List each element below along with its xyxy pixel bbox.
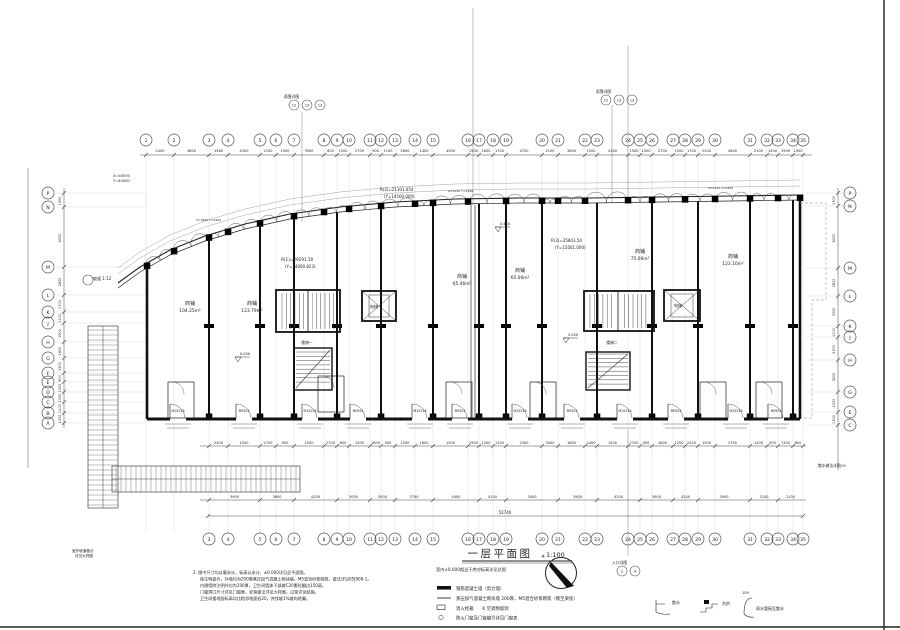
- grid-bubble-label: L: [849, 294, 852, 300]
- sketch-dim: 100: [742, 591, 750, 595]
- grid-bubble-label: 10: [346, 138, 352, 144]
- wc-door-swing: [760, 382, 772, 394]
- grid-bubble-label: 18: [490, 537, 496, 543]
- dim-value: 1500: [339, 149, 348, 153]
- legend-swatch-window: [439, 615, 443, 619]
- north-needle: [549, 562, 574, 588]
- dim-value: 2400: [587, 441, 596, 445]
- grid-bubble-label: B: [46, 411, 49, 417]
- grid-bubble-label: 13: [392, 138, 398, 144]
- column: [625, 197, 632, 204]
- grid-bubble-label: N: [46, 205, 49, 211]
- dim-value: 6200: [832, 234, 836, 243]
- elevation-mark: [235, 357, 241, 362]
- north-mark: ✳: [541, 554, 545, 560]
- notes: 2. 图中尺寸均以毫米计，标高以米计，±0.000详见总平面图。 除注明者外，外…: [193, 569, 371, 601]
- grid-bubble-label: 23: [594, 537, 600, 543]
- dim-value: 1800: [482, 149, 491, 153]
- note-line: 卫生间楼地面标高均比相邻地面低20，并找坡1%坡向地漏。: [200, 595, 310, 601]
- drawing-title: 一层平面图: [468, 548, 533, 560]
- dim-value: 900: [385, 441, 392, 445]
- grid-bubble-label: M: [46, 265, 50, 271]
- elevation-mark: [495, 227, 501, 232]
- grid-bubble-label: 20: [539, 537, 545, 543]
- dim-value: 2100: [760, 495, 769, 499]
- ramp-callout-bubble: [83, 275, 93, 285]
- dim-value: 1400: [420, 149, 429, 153]
- grid-bubble-label: H: [848, 358, 851, 364]
- dim-value: 2700: [728, 441, 737, 445]
- grid-bubble-label: 6: [275, 537, 278, 543]
- grid-bubble-label: 12: [378, 537, 384, 543]
- dim-total: 52740: [499, 510, 512, 515]
- grid-bubble-label: 22: [582, 138, 588, 144]
- dim-value: 1200: [355, 441, 364, 445]
- room-area: 65.46m²: [453, 281, 472, 287]
- dim-value: 3900: [305, 149, 314, 153]
- dim-value: 1300: [832, 415, 836, 424]
- wc-door-swing: [534, 382, 546, 394]
- dim-value: 3900: [652, 495, 661, 499]
- dim-value: 4100: [608, 149, 617, 153]
- dim-value: 2700: [630, 441, 639, 445]
- grid-bubble-label: K: [848, 324, 852, 330]
- grid-bubble-label: 29: [695, 537, 701, 543]
- callout-number: 2: [621, 570, 623, 574]
- dim-value: 3900: [573, 495, 582, 499]
- column: [346, 206, 353, 213]
- door-tag: M1023A: [171, 409, 185, 413]
- door-tag: M0924: [567, 409, 578, 413]
- grid-bubble-label: 4: [227, 138, 230, 144]
- annotation: X=4722 Y=1260: [708, 186, 733, 190]
- dim-value: 1100: [495, 441, 504, 445]
- dim-value: 2800: [832, 279, 836, 288]
- dim-value: 1400: [768, 149, 777, 153]
- annotation: 楼梯一: [301, 340, 313, 345]
- room-area: 123.79m²: [241, 308, 263, 314]
- column: [465, 198, 472, 205]
- dim-value: 3000: [378, 495, 387, 499]
- sketch-label: 雨水管接至散水: [756, 605, 784, 611]
- dim-value: 1700: [687, 149, 696, 153]
- grid-bubble-label: 35: [800, 537, 806, 543]
- annotation: (Y=14000.823): [285, 264, 316, 269]
- dim-value: 2700: [658, 149, 667, 153]
- grid-bubble-label: 8: [323, 138, 326, 144]
- door-tag: M0924: [353, 409, 364, 413]
- dim-value: 1200: [675, 441, 684, 445]
- room-area: 65.06m²: [511, 275, 530, 281]
- dim-value: 1500: [281, 149, 290, 153]
- dim-value: 1800: [658, 441, 667, 445]
- dim-value: 1500: [240, 441, 249, 445]
- dim-value: 1500: [305, 441, 314, 445]
- column: [412, 201, 419, 208]
- dim-value: 900: [58, 375, 62, 381]
- dim-value: 900: [643, 441, 650, 445]
- grid-bubble-label: 16: [465, 138, 471, 144]
- annotation: X=4150 Y=1298: [448, 189, 473, 193]
- annotation: R(3)=35843.54: [551, 238, 582, 243]
- dim-value: 2300: [520, 441, 529, 445]
- dim-value: 2100: [786, 495, 795, 499]
- dim-value: 1900: [58, 329, 62, 338]
- room-area: 123.10m²: [722, 261, 744, 267]
- grid-bubble-label: L: [47, 293, 50, 299]
- grid-bubble-label: 2: [173, 138, 176, 144]
- dim-value: 1300: [832, 196, 836, 205]
- grid-bubble-label: 12: [378, 138, 384, 144]
- grid-bubble-label: 10: [346, 537, 352, 543]
- grid-bubble-label: C: [46, 400, 49, 406]
- callout-label: 入口详图: [612, 560, 627, 565]
- grid-bubble-label: 30: [712, 138, 718, 144]
- callout-label: 雨篷详图: [596, 89, 611, 94]
- room-name: 商铺: [457, 273, 467, 280]
- dimensions: [62, 153, 840, 518]
- annotation: 坡道 1:12: [93, 275, 112, 281]
- floor-plan-sheet: M1023AM0924M1023AM0924M1023AM0924M1023AM…: [0, 0, 900, 630]
- dim-value: 900: [769, 441, 776, 445]
- grid-bubble-label: 20: [539, 138, 545, 144]
- dim-value: 2000: [832, 399, 836, 408]
- grid-bubble-label: 11: [367, 138, 373, 144]
- dim-value: 2100: [264, 149, 273, 153]
- dim-value: 1200: [754, 441, 763, 445]
- grid-bubble-label: 34: [790, 537, 796, 543]
- dim-value: 3200: [832, 373, 836, 382]
- annotation: (Y=14500.000): [384, 194, 415, 199]
- dim-value: 1000: [58, 384, 62, 393]
- dim-value: 2700: [264, 441, 273, 445]
- legend-label: 防火门窗及门窗编号详见门窗表: [456, 615, 518, 622]
- grid-bubble-label: E: [849, 410, 852, 416]
- grid-bubble-label: 19: [503, 537, 509, 543]
- door-tag: M0924: [771, 409, 782, 413]
- dim-value: 2400: [687, 441, 696, 445]
- sketch-label: 散水: [672, 599, 680, 605]
- grid-bubble-label: G: [848, 390, 852, 396]
- grid-bubble-label: J: [848, 335, 850, 341]
- dim-value: 2100: [546, 149, 555, 153]
- grid-bubble-label: 26: [649, 138, 655, 144]
- dim-value: 4500: [446, 149, 455, 153]
- grid-bubble-label: 17: [476, 138, 482, 144]
- columns: [144, 195, 804, 421]
- grid-bubble-label: 25: [637, 138, 643, 144]
- column: [775, 195, 782, 202]
- grid-bubble-label: 24: [625, 537, 631, 543]
- grid-bubble-label: E: [47, 380, 50, 386]
- grid-bubble-label: 7: [293, 138, 296, 144]
- grid-bubble-label: 35: [800, 138, 806, 144]
- room-name: 商铺: [185, 300, 195, 307]
- grid-bubble-label: P: [849, 191, 852, 197]
- dim-value: 3600: [273, 495, 282, 499]
- grid-bubble-label: 32: [764, 537, 770, 543]
- grid-bubble-label: 32: [764, 138, 770, 144]
- grid-bubble-label: 3: [208, 537, 211, 543]
- bottom-wall: [147, 404, 800, 428]
- dim-value: 3900: [720, 495, 729, 499]
- dim-value: 1700: [58, 300, 62, 309]
- dim-value: 2400: [156, 149, 165, 153]
- dim-value: 2700: [410, 495, 419, 499]
- annotation: 楼梯二: [606, 340, 618, 345]
- grid-bubble-label: 5: [259, 537, 262, 543]
- column: [682, 196, 689, 203]
- dim-value: 1200: [482, 441, 491, 445]
- column: [582, 198, 589, 205]
- dim-value: 1900: [781, 149, 790, 153]
- dim-value: 4800: [187, 149, 196, 153]
- dim-value: 1300: [794, 149, 803, 153]
- dim-value: 1100: [832, 328, 836, 337]
- grid-bubble-label: C: [848, 423, 851, 429]
- door-tag: M1023A: [513, 409, 527, 413]
- grid-bubble-label: 31: [747, 537, 753, 543]
- room-name: 商铺: [515, 267, 525, 274]
- callout-number: 13: [630, 99, 635, 103]
- dim-value: 3600: [567, 149, 576, 153]
- column: [225, 229, 232, 236]
- grid-bubble-label: N: [848, 204, 851, 210]
- dim-value: 3000: [349, 495, 358, 499]
- dim-value: 4300: [240, 149, 249, 153]
- grid-bubble-label: 34: [790, 138, 796, 144]
- callout-number: 13: [617, 99, 622, 103]
- grid-bubble-label: 5: [259, 138, 262, 144]
- sketch-label: 台阶: [722, 600, 730, 606]
- grid-bubble-label: 17: [476, 537, 482, 543]
- room-area: 75.06m²: [631, 256, 650, 262]
- grid-bubble-label: 33: [775, 138, 781, 144]
- annotation: X=3620 Y=1402: [196, 218, 221, 222]
- dim-value: 800: [795, 441, 802, 445]
- dim-value: 2800: [58, 278, 62, 287]
- annotation: 详见大样图: [75, 553, 93, 558]
- grid-bubble-label: 9: [336, 138, 339, 144]
- grid-bubble-label: 24: [625, 138, 631, 144]
- grid-bubble-label: A: [46, 421, 50, 427]
- dim-value: 2300: [832, 345, 836, 354]
- dim-value: 1500: [702, 441, 711, 445]
- callout-number: 13: [305, 104, 310, 108]
- grid-bubble-label: F: [47, 371, 50, 377]
- note-line: 2. 图中尺寸均以毫米计，标高以米计，±0.000详见总平面图。: [193, 569, 308, 575]
- elevation-mark: [563, 338, 569, 343]
- annotation: 电梯: [370, 303, 378, 309]
- grid-bubble-label: 22: [582, 537, 588, 543]
- dim-value: 4200: [681, 495, 690, 499]
- dim-value: 1500: [587, 149, 596, 153]
- grid-bubble-label: 7: [293, 537, 296, 543]
- dim-value: 1800: [567, 441, 576, 445]
- legend-label: 蒸压加气混凝土砌块墙 200厚，M5混合砂浆砌筑（砌至梁底）: [456, 595, 578, 602]
- grid-bubble-label: 9: [336, 537, 339, 543]
- dim-value: 1800: [371, 441, 380, 445]
- elevation-value: 0.000: [240, 352, 251, 356]
- dim-value: 1000: [58, 394, 62, 403]
- dim-value: 2100: [754, 149, 763, 153]
- annotation: R(2)=21101.054: [380, 187, 414, 192]
- grid-bubble-label: M: [848, 266, 852, 272]
- dim-value: 600: [340, 441, 347, 445]
- grid-bubble-label: G: [46, 356, 50, 362]
- dim-value: 4700: [520, 149, 529, 153]
- dim-value: 2200: [702, 149, 711, 153]
- dim-value: 1000: [58, 415, 62, 424]
- terrace-outline: [800, 203, 826, 418]
- grid-bubble-label: 31: [747, 138, 753, 144]
- sketch-taijie-block: [704, 600, 709, 604]
- dim-value: 900: [282, 441, 289, 445]
- room-name: 商铺: [728, 253, 738, 260]
- dim-value: 2900: [469, 441, 478, 445]
- dim-value: 1200: [401, 441, 410, 445]
- grid-bubble-label: 4: [227, 537, 230, 543]
- grid-bubble-label: 28: [682, 138, 688, 144]
- dim-value: 2400: [214, 441, 223, 445]
- grid-bubble-label: 13: [392, 537, 398, 543]
- detail-sketches: 散水 台阶 100 雨水管接至散水: [656, 591, 784, 617]
- grid-bubble-label: 19: [503, 138, 509, 144]
- dim-value: 2700: [326, 441, 335, 445]
- column: [712, 196, 719, 203]
- dim-value: 3000: [546, 441, 555, 445]
- wc-door-swing: [172, 382, 184, 394]
- wc-door-swing: [704, 382, 716, 394]
- callout-label: 雨篷详图: [284, 94, 299, 99]
- grid-bubble-label: 23: [594, 138, 600, 144]
- column: [321, 209, 328, 216]
- dim-value: 1700: [495, 149, 504, 153]
- grid-bubble-label: D: [46, 390, 50, 396]
- north-arrow: ✳: [541, 554, 577, 589]
- grid-bubble-label: 3: [208, 138, 211, 144]
- door-tag: M0924: [671, 409, 682, 413]
- dim-value: 600: [327, 149, 334, 153]
- annotation: X=45000: [113, 174, 131, 178]
- note-line: 门窗洞口尺寸详见门窗表，安装做法详见大样图，过梁详见结施。: [200, 589, 319, 595]
- grid-bubble-label: 14: [412, 138, 418, 144]
- grid-bubble-label: P: [47, 191, 50, 197]
- dim-value: 1600: [58, 347, 62, 356]
- grid-bubble-label: 18: [490, 138, 496, 144]
- dim-value: 4100: [488, 495, 497, 499]
- legend-swatch-hydrant: [437, 605, 445, 610]
- door-tag: M1023A: [729, 409, 743, 413]
- callout-number: 12: [292, 104, 297, 108]
- door-tag: M0924: [455, 409, 466, 413]
- grid-bubble-label: 6: [275, 138, 278, 144]
- room-name: 商铺: [635, 248, 645, 255]
- dim-value: 3400: [528, 495, 537, 499]
- callout-number: 12: [604, 99, 609, 103]
- sketch-sanshui: [656, 600, 670, 614]
- stair-core-2: [584, 290, 700, 390]
- grid-bubble-label: 21: [555, 537, 561, 543]
- elevation-value: 0.450: [500, 222, 511, 226]
- dim-value: 1500: [446, 441, 455, 445]
- wc-room: [318, 376, 344, 412]
- dim-value: 2600: [401, 149, 410, 153]
- dim-value: 3000: [832, 308, 836, 317]
- door-tag: M1023A: [413, 409, 427, 413]
- dim-value: 3900: [230, 495, 239, 499]
- door-tag: M0924: [239, 409, 250, 413]
- annotation: (Y=15001.000): [555, 245, 586, 250]
- grid-bubble-label: 16: [465, 537, 471, 543]
- dim-value: 1300: [781, 441, 790, 445]
- callout-number: 4: [634, 570, 637, 574]
- dim-value: 1500: [608, 441, 617, 445]
- dim-value: 1500: [58, 362, 62, 371]
- legend: 钢筋混凝土墙（剪力墙） 蒸压加气混凝土砌块墙 200厚，M5混合砂浆砌筑（砌至梁…: [437, 585, 578, 622]
- grid-bubble-label: 25: [637, 537, 643, 543]
- annotation: R(1)=29291.50: [281, 257, 314, 262]
- room-area: 104.25m²: [179, 308, 201, 314]
- grid-bubble-label: K: [46, 310, 50, 316]
- dim-value: 4600: [728, 149, 737, 153]
- dim-value: 1500: [630, 149, 639, 153]
- dim-value: 900: [372, 149, 379, 153]
- grid-bubble-label: 28: [682, 537, 688, 543]
- grid-bubble-label: 26: [649, 537, 655, 543]
- note-line: 除注明者外，外墙均为200厚蒸压加气混凝土砌块墙，M5混合砂浆砌筑，做法详见05…: [200, 576, 371, 582]
- dim-value: 1560: [214, 149, 223, 153]
- grid-bubble-label: 15: [430, 537, 436, 543]
- dim-value: 1500: [58, 197, 62, 206]
- dim-value: 2700: [355, 149, 364, 153]
- room-name: 商铺: [247, 300, 257, 307]
- annotation: Y=40000: [113, 179, 130, 183]
- grid-bubble-label: 30: [712, 537, 718, 543]
- dim-value: 1100: [58, 404, 62, 413]
- dim-value: 1500: [642, 149, 651, 153]
- annotation: 电梯: [674, 302, 682, 308]
- annotation: 散水做法详图19: [818, 463, 846, 468]
- legend-label: 钢筋混凝土墙（剪力墙）: [456, 585, 504, 592]
- grid-bubble-label: J: [46, 321, 48, 327]
- sketch-yushuiguan: [744, 598, 754, 617]
- grid-bubble-label: 14: [412, 537, 418, 543]
- note-line: 内隔墙除注明外均为200厚，卫生间墙体下部做C20素砼翻边150高。: [200, 582, 326, 588]
- grid-bubble-label: 11: [367, 537, 373, 543]
- wc-room: [700, 382, 726, 418]
- grid-bubble-label: 33: [775, 537, 781, 543]
- dim-value: 4200: [311, 495, 320, 499]
- dim-value: 1500: [675, 149, 684, 153]
- sketch-taijie: [700, 604, 718, 612]
- grid-bubble-label: 1: [145, 138, 148, 144]
- legend-swatch-shearwall: [437, 586, 451, 590]
- grid-bubble-label: H: [46, 340, 49, 346]
- plan-drawing: M1023AM0924M1023AM0924M1023AM0924M1023AM…: [42, 8, 856, 576]
- grid-bubble-label: 15: [430, 138, 436, 144]
- drawing-subtitle: 室内±0.000相当于绝对标高详见总图: [436, 566, 506, 573]
- wc-door-swing: [450, 382, 462, 394]
- elevation-value: 3.000: [568, 333, 579, 337]
- dim-value: 6000: [58, 234, 62, 243]
- dim-value: 1800: [420, 441, 429, 445]
- annotation: 室外坡道做法: [72, 548, 94, 553]
- dim-value: 1100: [58, 314, 62, 323]
- grid-bubble-label: 27: [670, 537, 676, 543]
- door-tag: M1023A: [303, 409, 317, 413]
- dim-value: 1100: [384, 149, 393, 153]
